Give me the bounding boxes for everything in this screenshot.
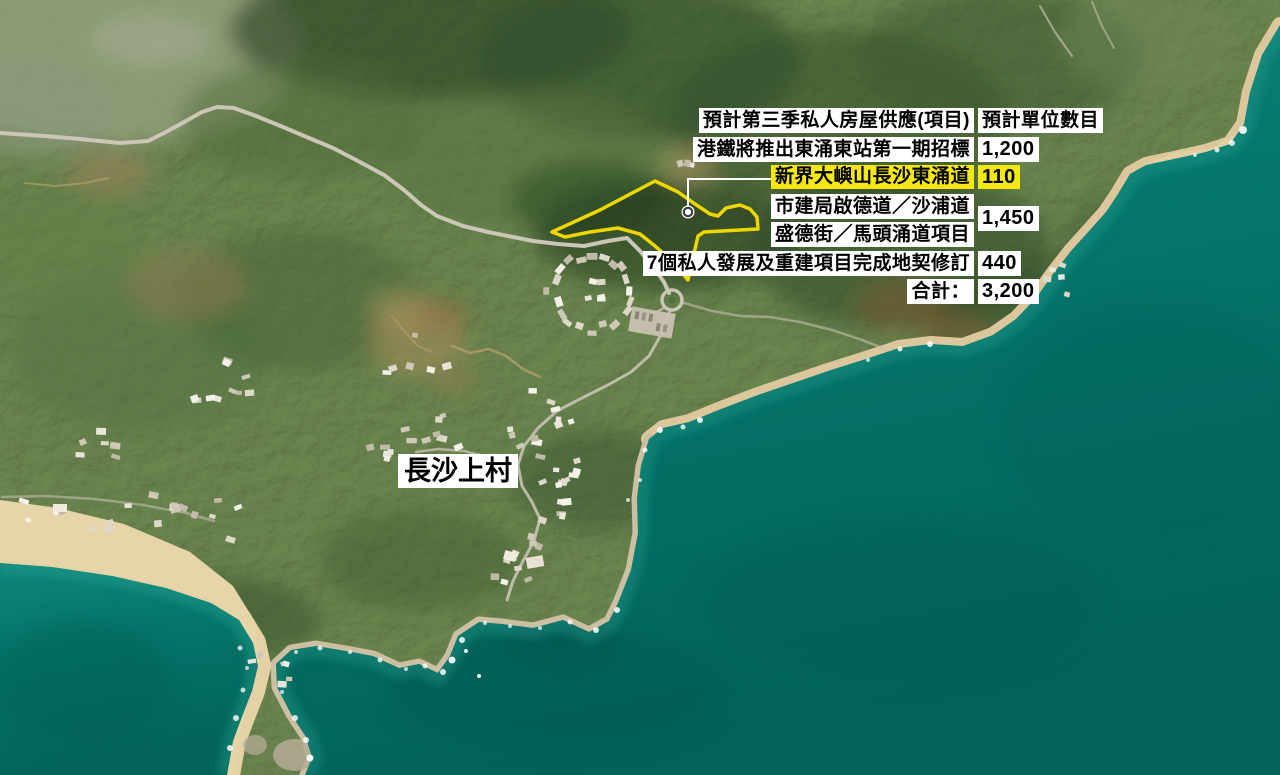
row-total-units: 3,200: [978, 279, 1039, 304]
merged-units-value: 1,450: [978, 206, 1039, 231]
row-shing-tak-label: 盛德街／馬頭涌道項目: [771, 222, 974, 247]
row-cheung-sha-label: 新界大嶼山長沙東涌道: [771, 165, 974, 189]
row-kai-tak-label: 市建局啟德道／沙浦道: [771, 194, 974, 219]
site-marker-icon: [684, 208, 692, 216]
row-lease-mod-label: 7個私人發展及重建項目完成地契修訂: [643, 251, 974, 276]
village-label: 長沙上村: [398, 454, 518, 488]
table-header-project: 預計第三季私人房屋供應(項目): [699, 108, 974, 133]
row-cheung-sha-units: 110: [978, 165, 1020, 189]
row-mtr-label: 港鐵將推出東涌東站第一期招標: [693, 137, 974, 162]
row-total-label: 合計：: [907, 279, 974, 304]
row-mtr-units: 1,200: [978, 137, 1039, 162]
news-map-graphic: 預計第三季私人房屋供應(項目) 預計單位數目 港鐵將推出東涌東站第一期招標 1,…: [0, 0, 1280, 775]
row-lease-mod-units: 440: [978, 251, 1021, 276]
table-header-units: 預計單位數目: [978, 108, 1103, 133]
